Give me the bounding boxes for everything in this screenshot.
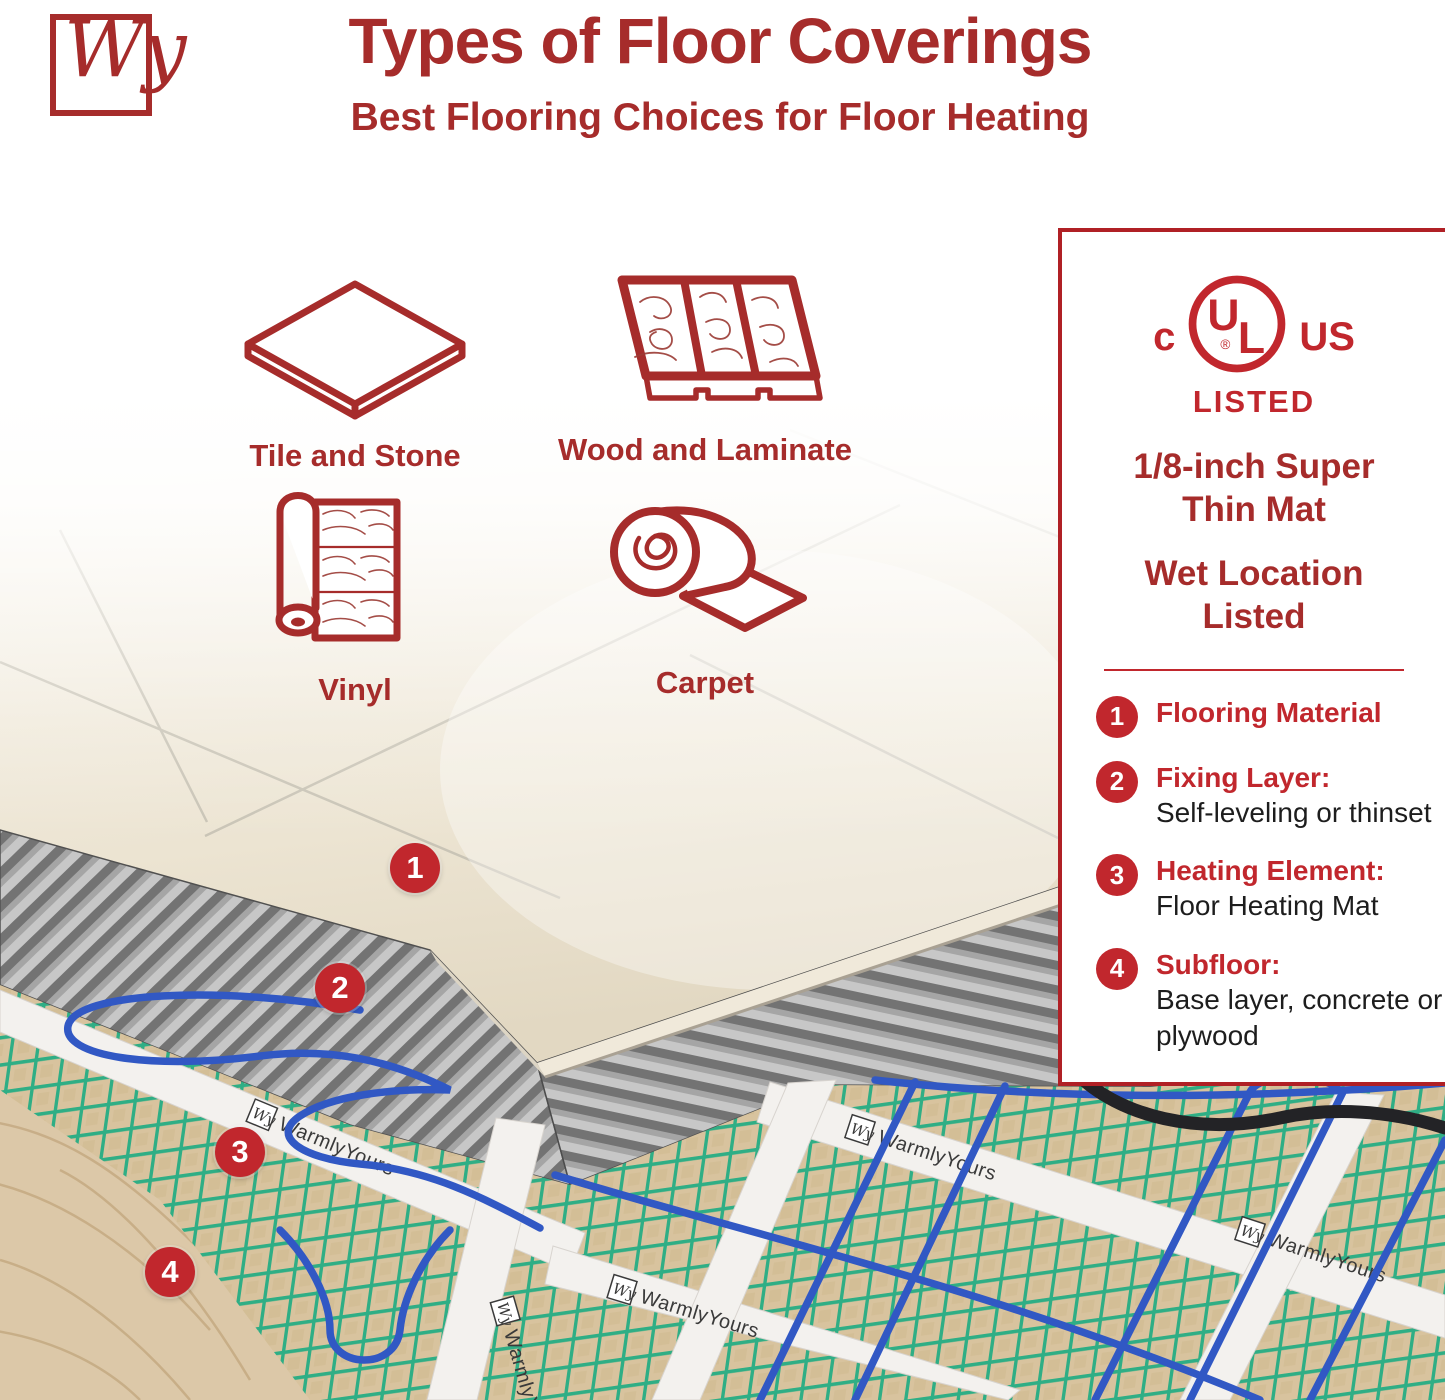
ul-registered-symbol: ® <box>1221 337 1231 352</box>
page-subtitle: Best Flooring Choices for Floor Heating <box>275 96 1165 140</box>
legend-text: Heating Element: Floor Heating Mat <box>1156 853 1445 924</box>
wood-and-laminate-icon <box>580 272 830 422</box>
warmlyyours-logo-text: Wy <box>64 8 187 94</box>
warmlyyours-logo: Wy <box>50 14 152 116</box>
ul-mark-suffix: US <box>1299 315 1355 360</box>
info-panel-content: c U L ® US LISTED 1/8-inch Super Thin Ma… <box>1062 266 1445 1054</box>
floor-type-label: Wood and Laminate <box>540 432 870 468</box>
legend-title: Subfloor: <box>1156 947 1445 982</box>
legend-item-fixing-layer: 2 Fixing Layer: Self-leveling or thinset <box>1062 760 1445 831</box>
legend-badge: 2 <box>1096 761 1138 803</box>
ul-letter-u: U <box>1208 291 1240 340</box>
legend-title: Heating Element: <box>1156 853 1445 888</box>
floor-type-label: Vinyl <box>255 672 455 708</box>
legend-title: Flooring Material <box>1156 695 1445 730</box>
ul-letter-l: L <box>1238 314 1265 363</box>
page-title: Types of Floor Coverings <box>275 4 1165 78</box>
floor-type-carpet: Carpet <box>590 492 820 701</box>
ul-circle-icon: U L ® <box>1179 266 1295 382</box>
ul-listed-label: LISTED <box>1062 384 1445 420</box>
tile-and-stone-icon <box>240 278 470 428</box>
callout-badge-subfloor: 4 <box>145 1247 195 1297</box>
floor-type-label: Tile and Stone <box>205 438 505 474</box>
legend-badge: 4 <box>1096 948 1138 990</box>
callout-badge-flooring: 1 <box>390 843 440 893</box>
legend-desc: Base layer, concrete or plywood <box>1156 982 1445 1055</box>
floor-type-wood-and-laminate: Wood and Laminate <box>540 272 870 468</box>
legend-item-subfloor: 4 Subfloor: Base layer, concrete or plyw… <box>1062 947 1445 1055</box>
legend-text: Flooring Material <box>1156 695 1445 730</box>
ul-listed-mark: c U L ® US <box>1062 266 1445 382</box>
legend-title: Fixing Layer: <box>1156 760 1445 795</box>
legend-badge: 1 <box>1096 696 1138 738</box>
callout-badge-fixing-layer: 2 <box>315 963 365 1013</box>
legend-item-heating-element: 3 Heating Element: Floor Heating Mat <box>1062 853 1445 924</box>
legend-text: Fixing Layer: Self-leveling or thinset <box>1156 760 1445 831</box>
floor-type-label: Carpet <box>590 665 820 701</box>
carpet-icon <box>595 492 815 657</box>
floor-type-tile-and-stone: Tile and Stone <box>205 278 505 474</box>
legend-desc: Floor Heating Mat <box>1156 888 1445 924</box>
legend-item-flooring: 1 Flooring Material <box>1062 695 1445 738</box>
info-panel: c U L ® US LISTED 1/8-inch Super Thin Ma… <box>1058 228 1445 1086</box>
panel-divider <box>1104 669 1404 671</box>
layer-legend: 1 Flooring Material 2 Fixing Layer: Self… <box>1062 695 1445 1055</box>
floor-type-vinyl: Vinyl <box>255 478 455 708</box>
legend-desc: Self-leveling or thinset <box>1156 795 1445 831</box>
infographic-root: Wy WarmlyYours Wy WarmlyYours Wy WarmlyY… <box>0 0 1445 1400</box>
feature-super-thin-mat: 1/8-inch Super Thin Mat <box>1094 446 1414 531</box>
legend-badge: 3 <box>1096 854 1138 896</box>
legend-text: Subfloor: Base layer, concrete or plywoo… <box>1156 947 1445 1055</box>
feature-wet-location: Wet Location Listed <box>1094 553 1414 638</box>
vinyl-icon <box>265 478 445 658</box>
callout-badge-heating-element: 3 <box>215 1127 265 1177</box>
ul-mark-prefix: c <box>1153 315 1175 360</box>
